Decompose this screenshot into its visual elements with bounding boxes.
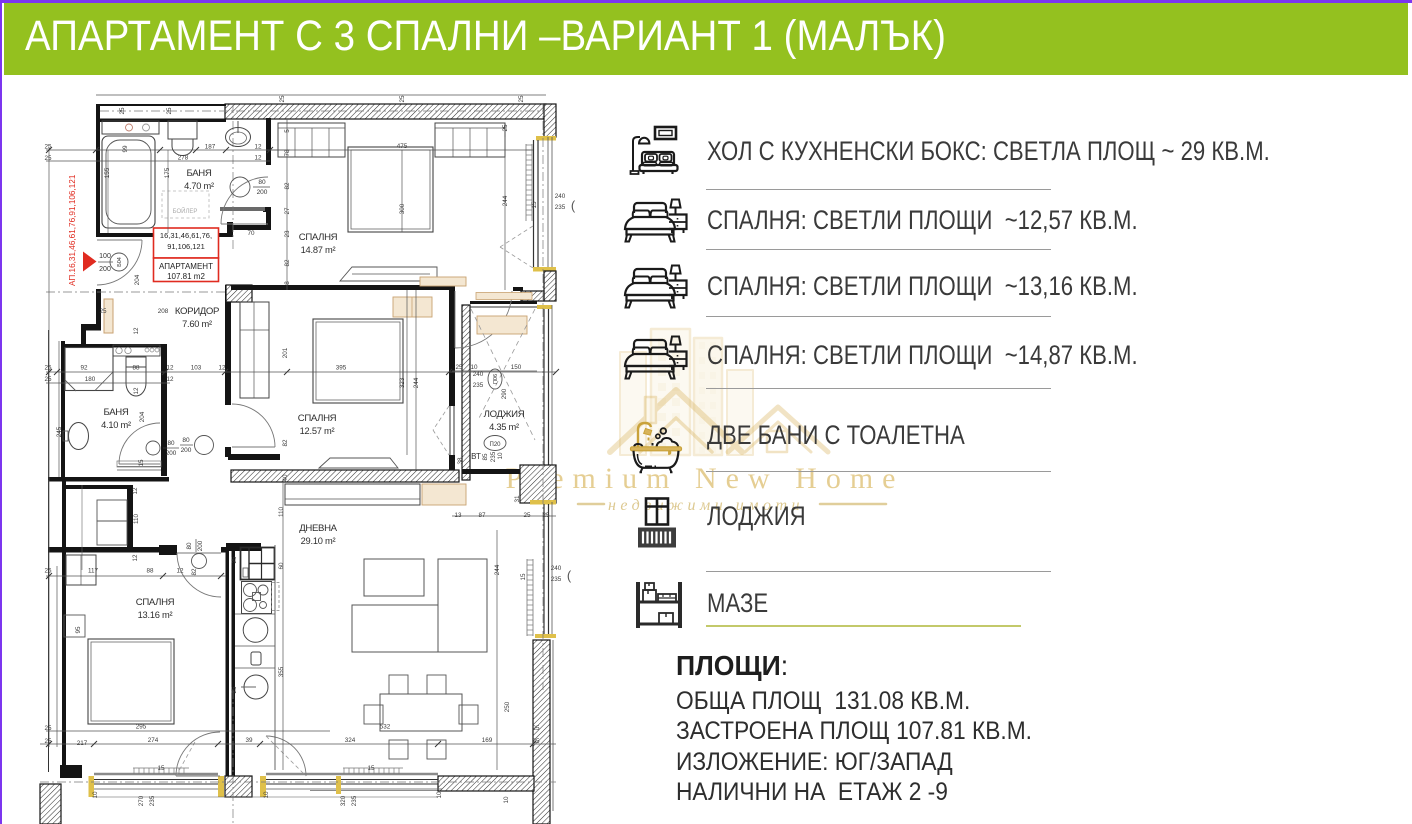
- svg-text:100: 100: [99, 253, 111, 260]
- svg-text:87: 87: [478, 512, 486, 519]
- svg-text:395: 395: [336, 365, 347, 372]
- svg-text:39: 39: [245, 737, 253, 744]
- svg-text:12: 12: [166, 376, 174, 383]
- svg-text:12: 12: [166, 365, 174, 372]
- svg-text:ЛОДЖИЯ: ЛОДЖИЯ: [484, 409, 525, 420]
- svg-text:110: 110: [133, 513, 140, 524]
- svg-text:250: 250: [504, 701, 511, 712]
- svg-text:25: 25: [532, 725, 540, 732]
- svg-text:23: 23: [284, 230, 291, 238]
- svg-text:290: 290: [501, 388, 508, 399]
- svg-text:78: 78: [284, 149, 291, 157]
- svg-text:БАНЯ: БАНЯ: [104, 407, 129, 418]
- svg-text:201: 201: [282, 347, 289, 358]
- svg-text:25: 25: [399, 95, 406, 103]
- svg-text:12: 12: [218, 365, 226, 372]
- svg-text:235: 235: [555, 204, 566, 211]
- svg-text:8: 8: [284, 281, 291, 285]
- svg-text:240: 240: [473, 371, 484, 378]
- svg-text:29.10 m²: 29.10 m²: [301, 536, 336, 546]
- svg-text:12: 12: [254, 155, 262, 162]
- svg-text:10: 10: [503, 796, 510, 804]
- svg-text:10: 10: [92, 791, 99, 799]
- svg-text:25: 25: [455, 364, 463, 371]
- svg-text:107.81 m2: 107.81 m2: [167, 272, 205, 281]
- svg-text:25: 25: [166, 107, 173, 115]
- svg-text:235: 235: [490, 451, 497, 462]
- svg-text:235: 235: [473, 382, 484, 389]
- svg-text:31: 31: [514, 495, 521, 503]
- svg-text:82: 82: [282, 439, 289, 447]
- svg-text:10: 10: [497, 452, 504, 460]
- svg-text:10: 10: [470, 364, 478, 371]
- svg-text:80: 80: [182, 437, 190, 444]
- svg-text:204: 204: [134, 274, 141, 285]
- svg-text:15: 15: [367, 765, 375, 772]
- svg-text:АПАРТАМЕНТ: АПАРТАМЕНТ: [159, 262, 213, 271]
- svg-text:532: 532: [380, 724, 391, 731]
- svg-text:4.70 m²: 4.70 m²: [184, 181, 214, 191]
- svg-text:110: 110: [278, 506, 285, 517]
- svg-text:324: 324: [345, 737, 356, 744]
- svg-text:200: 200: [166, 450, 177, 457]
- svg-text:7.60 m²: 7.60 m²: [182, 319, 212, 329]
- svg-text:СПАЛНЯ: СПАЛНЯ: [298, 413, 337, 424]
- svg-text:82: 82: [284, 182, 291, 190]
- svg-text:278: 278: [178, 155, 189, 162]
- svg-text:15: 15: [138, 459, 145, 467]
- svg-text:235: 235: [351, 795, 358, 806]
- svg-text:175: 175: [164, 167, 171, 178]
- svg-text:200: 200: [99, 266, 111, 273]
- svg-text:240: 240: [555, 193, 566, 200]
- svg-text:200: 200: [257, 189, 268, 196]
- svg-text:204: 204: [139, 411, 146, 422]
- svg-text:245: 245: [56, 426, 63, 437]
- svg-text:187: 187: [205, 144, 216, 151]
- svg-text:180: 180: [85, 376, 96, 383]
- svg-text:235: 235: [551, 576, 562, 583]
- svg-text:88: 88: [146, 568, 154, 575]
- svg-text:217: 217: [77, 740, 88, 747]
- svg-text:14.87 m²: 14.87 m²: [301, 245, 336, 255]
- svg-text:300: 300: [399, 203, 406, 214]
- svg-text:320: 320: [340, 795, 347, 806]
- svg-text:80: 80: [167, 440, 175, 447]
- svg-text:СПАЛНЯ: СПАЛНЯ: [299, 232, 338, 243]
- svg-text:Б04: Б04: [117, 257, 123, 267]
- svg-text:80: 80: [186, 542, 193, 550]
- svg-text:25: 25: [502, 124, 509, 132]
- svg-text:244: 244: [413, 377, 420, 388]
- svg-text:25: 25: [44, 144, 52, 151]
- svg-text:СПАЛНЯ: СПАЛНЯ: [136, 597, 175, 608]
- svg-text:15: 15: [157, 765, 165, 772]
- svg-text:10: 10: [263, 791, 270, 799]
- svg-text:88: 88: [132, 365, 140, 372]
- svg-text:25: 25: [44, 725, 52, 732]
- svg-text:13: 13: [454, 512, 462, 519]
- svg-text:13.16 m²: 13.16 m²: [138, 610, 173, 620]
- svg-text:323: 323: [399, 377, 406, 388]
- svg-text:10: 10: [436, 791, 443, 799]
- svg-text:12: 12: [254, 144, 262, 151]
- svg-text:П20: П20: [490, 442, 502, 448]
- svg-text:99: 99: [122, 145, 129, 153]
- svg-text:117: 117: [88, 568, 99, 575]
- svg-text:355: 355: [278, 666, 285, 677]
- svg-text:25: 25: [518, 95, 525, 103]
- svg-text:4.35 m²: 4.35 m²: [489, 422, 519, 432]
- svg-text:12: 12: [133, 387, 140, 395]
- svg-text:(: (: [571, 198, 576, 213]
- svg-text:ВТ: ВТ: [471, 452, 481, 461]
- svg-text:240: 240: [551, 565, 562, 572]
- svg-text:155: 155: [104, 167, 111, 178]
- svg-text:25: 25: [44, 155, 52, 162]
- svg-text:25: 25: [279, 95, 286, 103]
- svg-text:70: 70: [247, 230, 255, 237]
- svg-text:38: 38: [457, 457, 464, 465]
- svg-text:П06: П06: [493, 374, 499, 384]
- svg-text:15: 15: [531, 201, 538, 209]
- svg-text:25: 25: [99, 308, 107, 315]
- svg-text:12: 12: [132, 487, 139, 495]
- svg-text:АП.16,31,46,61,76,91,106,121: АП.16,31,46,61,76,91,106,121: [68, 174, 77, 286]
- svg-text:12: 12: [133, 327, 140, 335]
- svg-text:92: 92: [80, 365, 88, 372]
- svg-text:82: 82: [284, 259, 291, 267]
- svg-text:25: 25: [231, 556, 238, 564]
- svg-text:150: 150: [511, 364, 522, 371]
- svg-text:12: 12: [132, 554, 139, 562]
- svg-text:103: 103: [191, 365, 202, 372]
- svg-text:БАНЯ: БАНЯ: [187, 168, 212, 179]
- svg-text:85: 85: [482, 453, 489, 461]
- svg-text:12: 12: [176, 568, 184, 575]
- svg-text:295: 295: [136, 724, 147, 731]
- svg-text:4.10 m²: 4.10 m²: [101, 420, 131, 430]
- svg-text:244: 244: [494, 564, 501, 575]
- svg-text:40: 40: [282, 474, 289, 482]
- svg-text:(: (: [567, 568, 572, 583]
- svg-text:169: 169: [482, 737, 493, 744]
- svg-text:БОЙЛЕР: БОЙЛЕР: [173, 207, 198, 215]
- svg-text:235: 235: [149, 795, 156, 806]
- svg-text:91,106,121: 91,106,121: [167, 242, 205, 251]
- svg-text:80: 80: [258, 179, 266, 186]
- svg-text:27: 27: [284, 207, 291, 215]
- svg-text:5: 5: [284, 129, 291, 133]
- svg-text:15: 15: [520, 573, 527, 581]
- svg-text:60: 60: [278, 562, 285, 570]
- svg-text:475: 475: [397, 143, 408, 150]
- svg-text:208: 208: [158, 308, 169, 315]
- svg-text:95: 95: [75, 626, 82, 634]
- svg-text:ДНЕВНА: ДНЕВНА: [299, 523, 337, 534]
- svg-text:270: 270: [138, 795, 145, 806]
- svg-text:244: 244: [502, 195, 509, 206]
- svg-text:25: 25: [44, 376, 52, 383]
- svg-text:12.57 m²: 12.57 m²: [300, 426, 335, 436]
- svg-text:25: 25: [542, 512, 550, 519]
- svg-text:274: 274: [148, 737, 159, 744]
- svg-text:200: 200: [181, 447, 192, 454]
- svg-text:КОРИДОР: КОРИДОР: [175, 306, 219, 317]
- svg-text:25: 25: [523, 512, 531, 519]
- svg-text:82: 82: [191, 568, 198, 576]
- svg-text:25: 25: [231, 686, 238, 694]
- svg-text:25: 25: [119, 107, 126, 115]
- svg-text:200: 200: [197, 540, 204, 551]
